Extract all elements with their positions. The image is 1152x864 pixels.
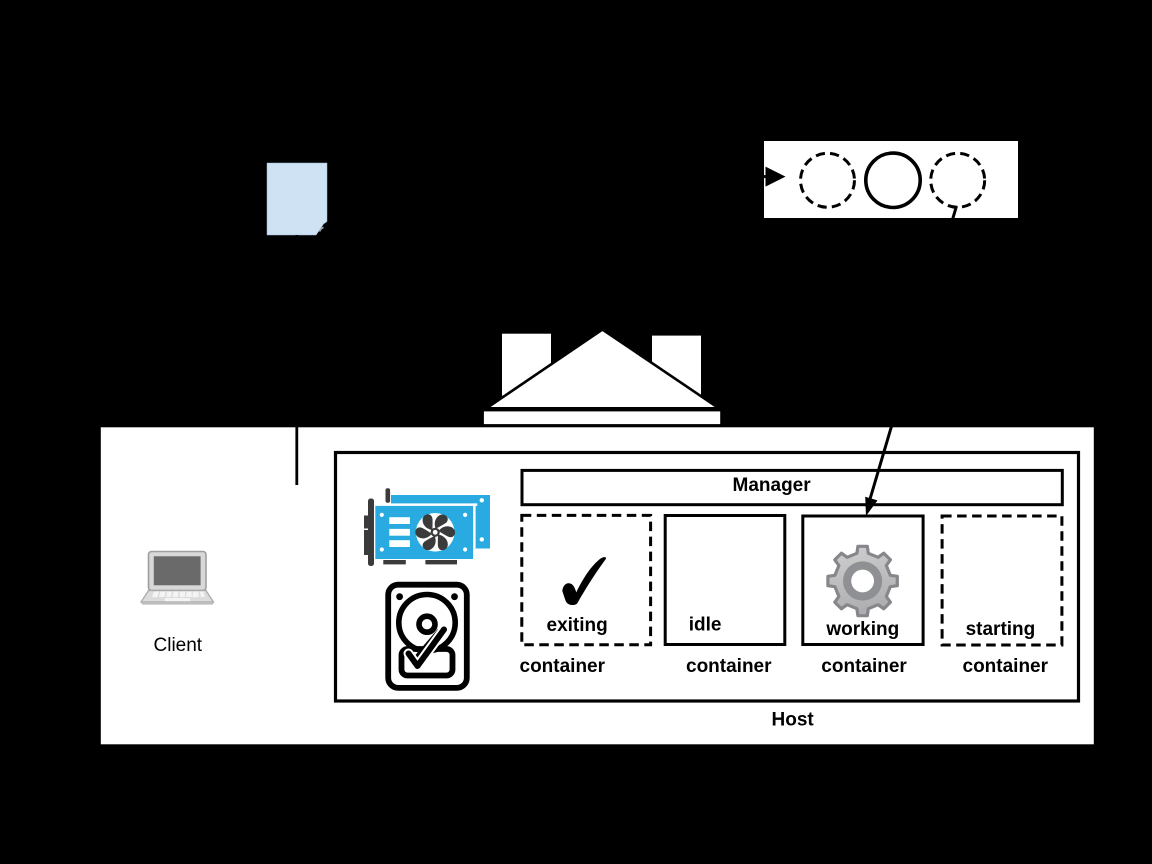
svg-text:exiting: exiting <box>547 615 608 636</box>
svg-text:working: working <box>825 619 899 640</box>
svg-text:container: container <box>963 656 1049 677</box>
svg-text:container: container <box>520 656 606 677</box>
svg-text:idle: idle <box>689 615 722 636</box>
svg-text:Manager: Manager <box>733 475 812 496</box>
svg-text:Host: Host <box>772 710 815 731</box>
svg-text:container: container <box>686 656 772 677</box>
svg-text:starting: starting <box>966 619 1036 640</box>
svg-text:container: container <box>821 656 907 677</box>
svg-text:Client: Client <box>154 635 203 656</box>
